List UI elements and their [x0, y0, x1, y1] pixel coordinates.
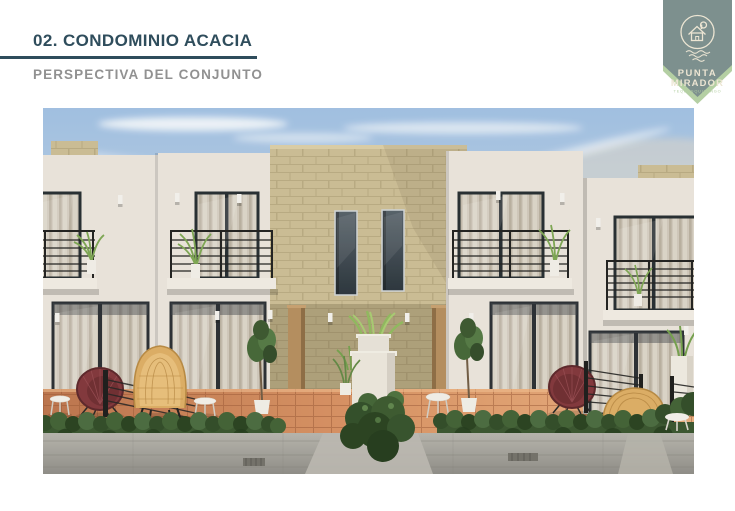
title-underline: [0, 56, 257, 59]
page-title: 02. CONDOMINIO ACACIA: [33, 31, 252, 51]
logo-line2: MIRADOR: [671, 77, 724, 88]
presentation-slide: 02. CONDOMINIO ACACIA PERSPECTIVA DEL CO…: [0, 0, 735, 511]
page-subtitle: PERSPECTIVA DEL CONJUNTO: [33, 67, 263, 82]
punta-mirador-logo: PUNTA MIRADOR TEQUESQUITENGO: [663, 0, 732, 104]
light-wash: [43, 108, 694, 474]
perspective-rendering: [43, 108, 694, 474]
logo-tagline: TEQUESQUITENGO: [674, 89, 722, 94]
